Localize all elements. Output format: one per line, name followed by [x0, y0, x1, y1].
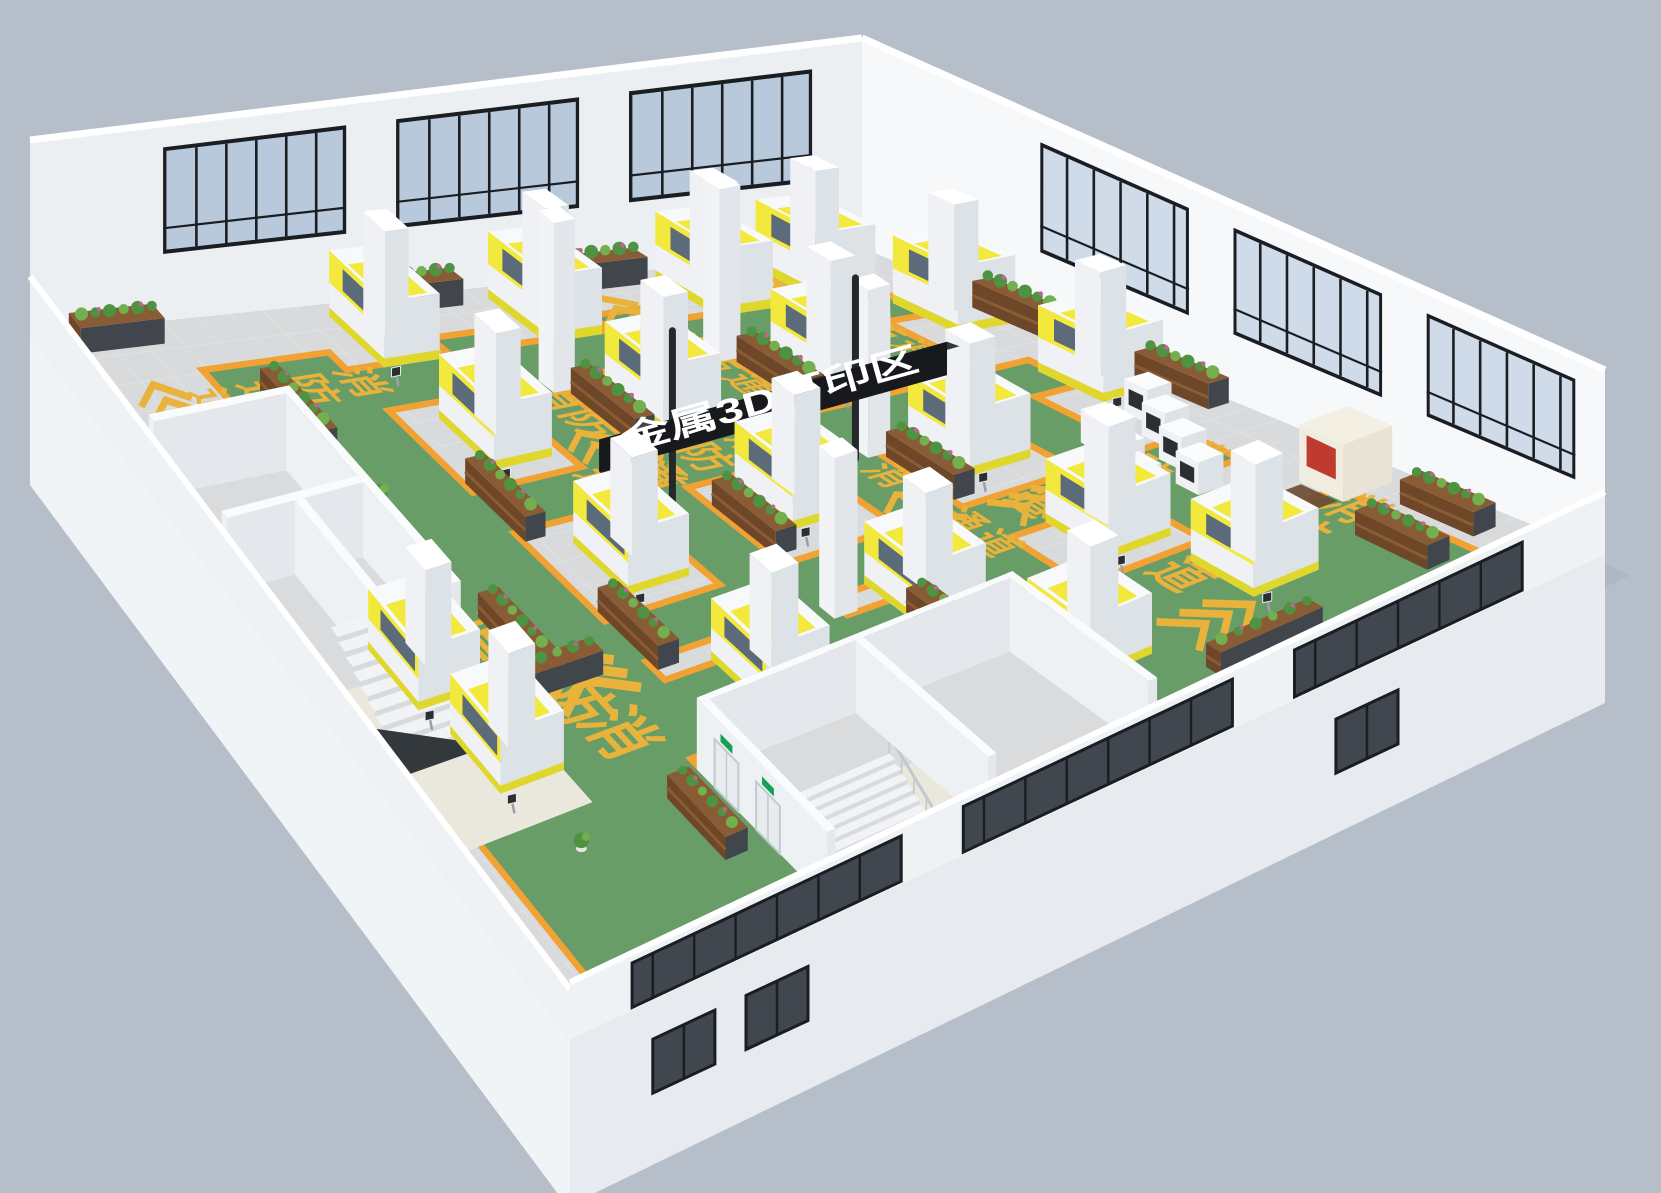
rack-flower	[1385, 504, 1389, 508]
structural-column-right-face	[835, 450, 858, 619]
rack-flower	[436, 264, 441, 269]
rack-plant	[1215, 633, 1227, 645]
rack-plant	[1170, 351, 1180, 361]
rack-flower	[934, 586, 938, 590]
rack-plant	[504, 478, 517, 491]
rack-plant	[744, 488, 754, 498]
rack-plant	[584, 636, 593, 645]
printer-machine-tower-right-face	[831, 256, 856, 366]
control-panel-screen	[425, 710, 434, 721]
printer-machine-tower-left-face	[928, 193, 954, 311]
partition-wall-left-face	[697, 698, 702, 775]
rack-plant	[657, 626, 669, 638]
printer-machine-tower-right-face	[1101, 265, 1127, 376]
rack-plant	[495, 470, 505, 480]
printer-machine-tower-right-face	[1109, 417, 1136, 526]
rack-plant	[919, 436, 929, 446]
rack-plant	[769, 341, 779, 351]
rack-plant	[929, 441, 942, 454]
rack-flower	[620, 243, 625, 248]
rack-flower	[1201, 361, 1206, 366]
printer-machine-tower-right-face	[508, 644, 535, 748]
rack-plant	[600, 245, 611, 256]
rack-plant	[637, 606, 649, 618]
rack-plant	[1007, 281, 1018, 292]
printer-machine-tower-left-face	[474, 313, 496, 434]
rack-plant	[611, 383, 624, 396]
structural-column-left-face	[539, 210, 554, 393]
rack-flower	[574, 642, 578, 646]
structural-column-right-face	[554, 219, 575, 393]
rack-flower	[630, 393, 634, 397]
control-panel-screen	[979, 472, 988, 483]
rack-flower	[1291, 603, 1295, 607]
rack-plant	[1412, 467, 1422, 477]
potted-plant-leaf	[582, 833, 590, 841]
rack-flower	[693, 776, 697, 780]
rack-plant	[628, 598, 638, 608]
rack-plant	[536, 635, 548, 647]
rack-flower	[723, 807, 727, 811]
rack-plant	[753, 495, 766, 508]
printer-machine-tower-right-face	[632, 450, 658, 556]
rack-plant	[897, 421, 907, 431]
rack-plant	[775, 512, 788, 525]
printer-machine-tower-left-face	[772, 378, 795, 495]
printer-machine-tower-left-face	[640, 280, 663, 400]
structural-column-left-face	[703, 178, 719, 361]
rack-flower	[521, 489, 525, 493]
rack-flower	[96, 307, 100, 311]
rack-flower	[1038, 291, 1043, 296]
printer-machine-tower-right-face	[1255, 453, 1283, 562]
metal-3d-print-zone-render: 消防通道消防通道消防通道消防通道消防通道消防通道消防通道消防通道消防通道金属3D…	[0, 0, 1661, 1193]
rack-plant	[1367, 498, 1377, 508]
rack-flower	[314, 403, 318, 407]
rack-plant	[726, 816, 738, 828]
printer-machine-tower-right-face	[1091, 535, 1119, 643]
rack-flower	[597, 367, 601, 371]
rack-plant	[678, 766, 687, 775]
rack-plant	[1018, 285, 1032, 299]
control-panel-screen	[801, 527, 810, 538]
rack-plant	[1391, 510, 1401, 520]
rack-plant	[1426, 526, 1439, 539]
rack-flower	[739, 479, 743, 483]
rack-flower	[914, 428, 918, 432]
printer-machine-tower-right-face	[496, 328, 521, 435]
control-panel-screen	[1263, 592, 1272, 603]
rack-plant	[706, 795, 718, 807]
rack-plant	[747, 326, 757, 336]
printer-machine-tower-right-face	[385, 228, 409, 335]
printer-machine-tower-left-face	[1084, 412, 1108, 526]
printer-machine-tower-left-face	[610, 438, 632, 556]
printer-machine-tower-left-face	[903, 476, 926, 591]
rack-flower	[654, 617, 658, 621]
rack-flower	[948, 450, 952, 454]
rack-plant	[475, 450, 485, 460]
rack-plant	[488, 584, 498, 594]
rack-plant	[1206, 365, 1219, 378]
rack-plant	[628, 242, 639, 253]
rack-plant	[444, 263, 454, 273]
printer-machine-tower-right-face	[425, 562, 451, 666]
rack-flower	[764, 333, 769, 338]
rack-plant	[75, 307, 88, 320]
rack-plant	[119, 304, 129, 314]
rack-plant	[952, 456, 965, 469]
rack-plant	[1402, 514, 1415, 527]
structural-column-left-face	[819, 446, 834, 619]
rack-flower	[1421, 521, 1425, 525]
control-panel-screen	[507, 793, 516, 804]
rack-plant	[1181, 355, 1194, 368]
rack-plant	[1250, 617, 1262, 629]
rack-plant	[602, 376, 612, 386]
rack-flower	[1164, 345, 1169, 350]
printer-machine-tower-left-face	[806, 246, 830, 365]
rack-plant	[535, 651, 547, 663]
rack-plant	[698, 786, 707, 795]
rack-plant	[633, 400, 646, 413]
printer-machine-tower-right-face	[795, 388, 821, 496]
printer-machine-tower-left-face	[750, 553, 772, 668]
rack-plant	[1302, 596, 1311, 605]
rack-flower	[1430, 472, 1434, 476]
rack-flower	[1001, 275, 1006, 280]
rack-flower	[798, 355, 803, 360]
rack-flower	[533, 626, 537, 630]
rack-flower	[138, 302, 142, 306]
rack-plant	[1472, 493, 1485, 506]
printer-machine-tower-left-face	[363, 212, 385, 335]
rack-flower	[491, 460, 495, 464]
control-panel-screen	[392, 366, 401, 377]
rack-plant	[1437, 478, 1447, 488]
rack-flower	[624, 588, 628, 592]
rack-plant	[103, 304, 116, 317]
rack-plant	[524, 498, 537, 511]
factory-render-stage: 消防通道消防通道消防通道消防通道消防通道消防通道消防通道消防通道消防通道金属3D…	[0, 0, 1661, 1193]
rack-plant	[917, 578, 927, 588]
rack-plant	[1145, 340, 1155, 350]
printer-machine-tower-right-face	[771, 563, 798, 669]
rack-flower	[503, 595, 507, 599]
rack-plant	[552, 647, 561, 656]
rack-plant	[269, 361, 279, 371]
rack-plant	[608, 578, 618, 588]
rack-flower	[1467, 489, 1471, 493]
rack-plant	[1268, 611, 1277, 620]
printer-machine-tower-right-face	[970, 336, 996, 445]
structural-column-right-face	[720, 185, 741, 362]
rack-plant	[779, 346, 792, 359]
printer-machine-tower-left-face	[1231, 451, 1256, 562]
rack-plant	[580, 359, 590, 369]
rack-plant	[147, 301, 157, 311]
rack-plant	[508, 605, 518, 615]
rack-plant	[722, 471, 732, 481]
printer-machine-tower-right-face	[926, 483, 953, 590]
rack-plant	[982, 270, 993, 281]
rack-flower	[285, 371, 289, 375]
rack-flower	[1239, 626, 1243, 630]
printer-machine-tower-left-face	[1075, 260, 1101, 376]
rack-flower	[771, 505, 775, 509]
rack-plant	[1448, 482, 1461, 495]
